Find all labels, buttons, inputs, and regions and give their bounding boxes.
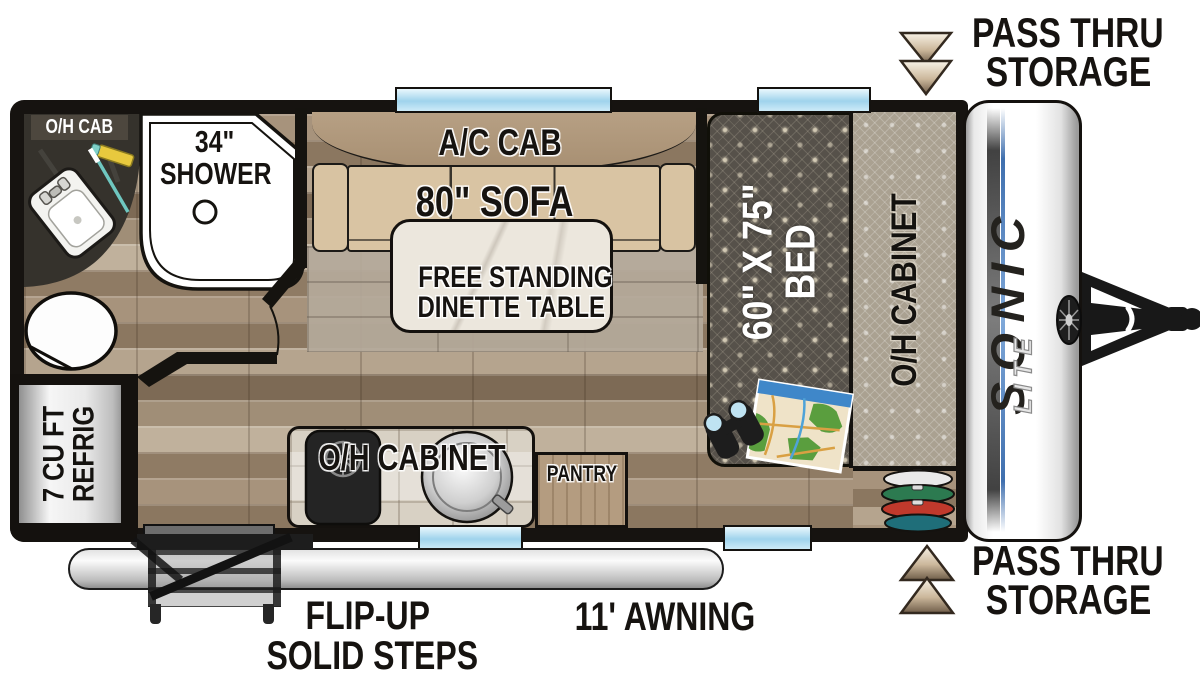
dinette-label: FREE STANDING DINETTE TABLE <box>394 263 609 323</box>
shower-label: SHOWER <box>143 159 288 188</box>
oh-cab-label: O/H CAB <box>31 115 128 140</box>
refrigerator-label: 7 CU FT REFRIG <box>17 383 123 525</box>
pass-thru-storage-top-label: PASS THRU STORAGE <box>948 14 1188 91</box>
stacked-plates-icon <box>882 470 954 532</box>
oh-cabinet-right-label: O/H CABINET <box>853 112 956 468</box>
flip-up-steps-label: FLIP-UP SOLID STEPS <box>240 596 495 676</box>
sofa-label: 80" SOFA <box>350 182 640 223</box>
rv-floorplan-page: { "floorplan": { "labels": { "oh_cab": "… <box>0 0 1200 683</box>
ac-cab-label: A/C CAB <box>380 125 620 160</box>
oh-cab-text: O/H CAB <box>46 116 114 139</box>
wheel-badge-icon <box>1057 296 1081 344</box>
trailer-hitch <box>1082 272 1200 366</box>
oh-cabinet-kitchen-label: O/H CABINET <box>292 441 532 475</box>
pass-thru-arrows-up-icon <box>901 546 953 613</box>
pantry-label: PANTRY <box>537 464 626 485</box>
pass-thru-arrows-down-icon <box>901 33 951 94</box>
shower-size-label: 34" <box>150 127 280 156</box>
bed-label: 60" X 75" BED <box>707 112 852 467</box>
pass-thru-storage-bottom-label: PASS THRU STORAGE <box>948 542 1188 619</box>
bathroom-door-swing <box>270 306 278 355</box>
toilet <box>26 293 116 369</box>
shower-drain-icon <box>194 201 216 223</box>
awning-label: 11' AWNING <box>545 598 785 636</box>
